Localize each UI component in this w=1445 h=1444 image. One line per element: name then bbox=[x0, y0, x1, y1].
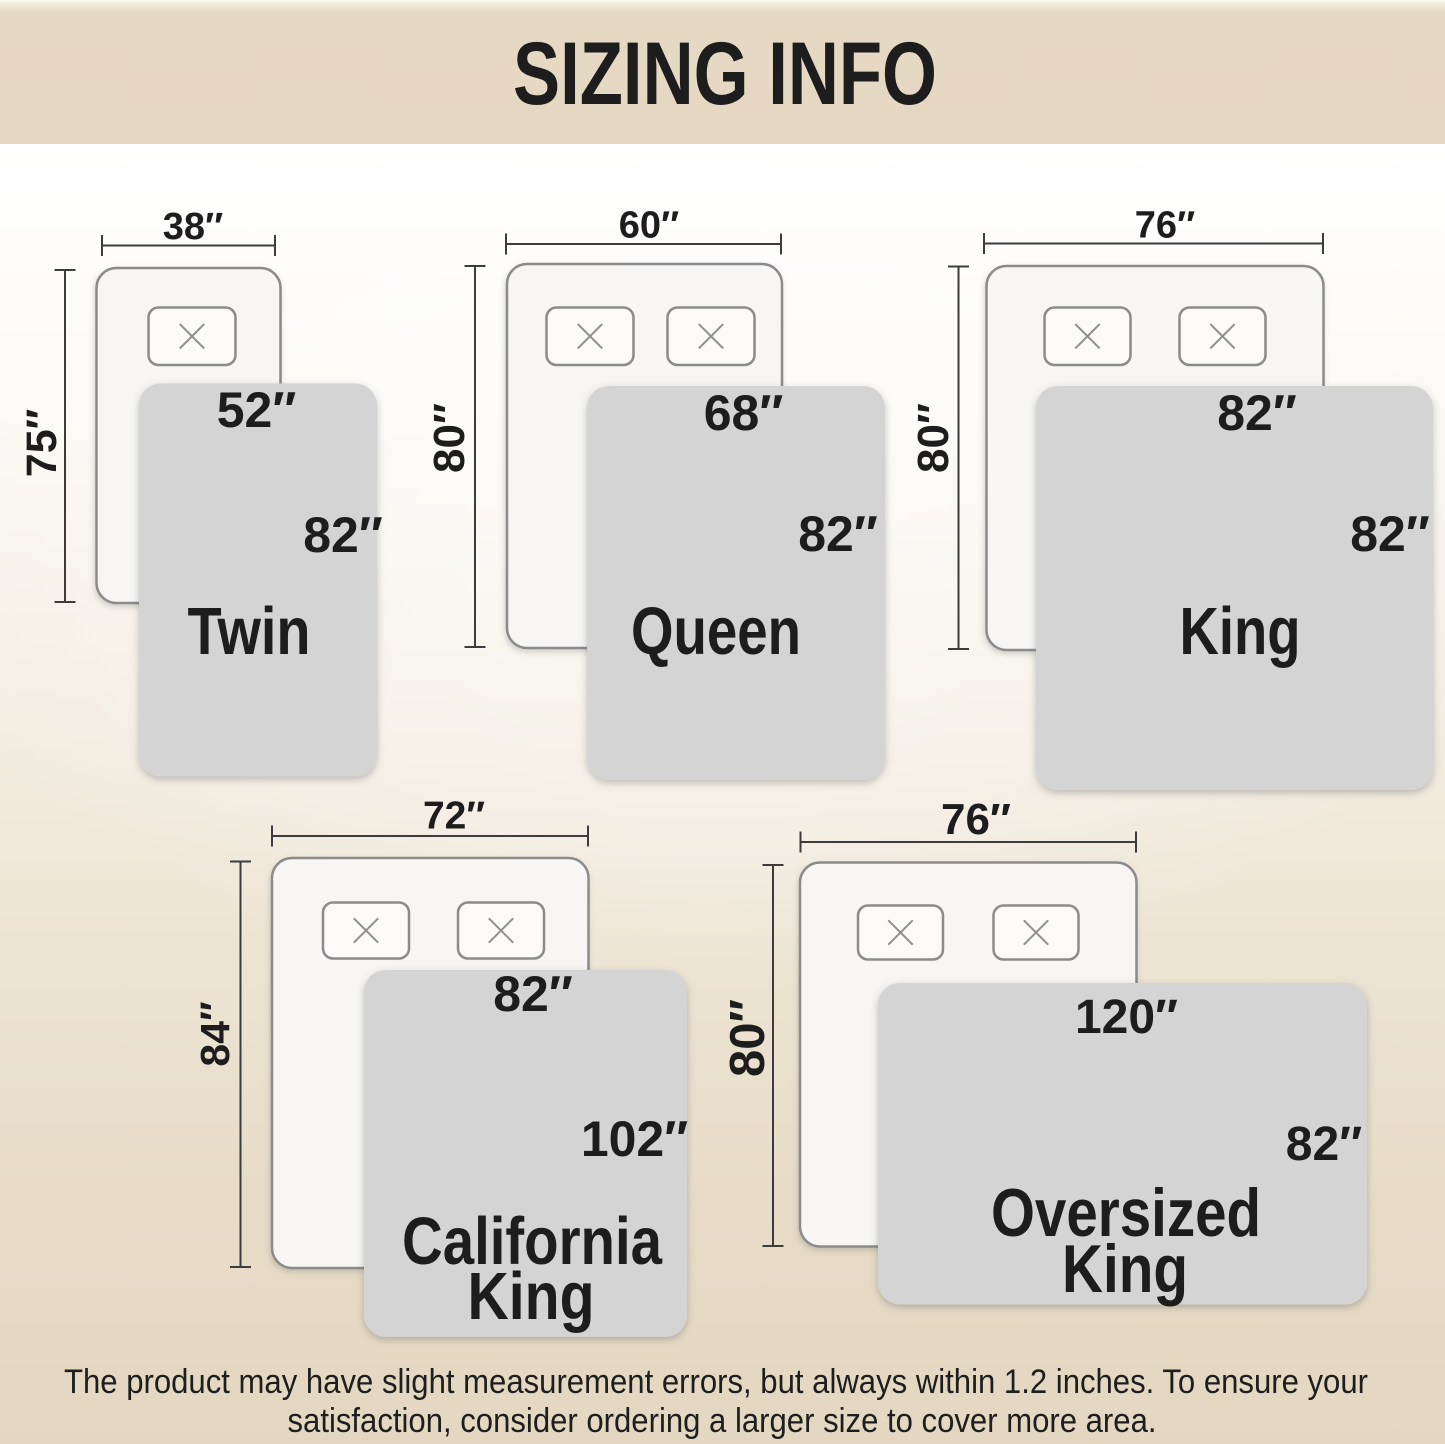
svg-text:80″: 80″ bbox=[909, 403, 958, 473]
svg-text:82″: 82″ bbox=[303, 507, 383, 563]
svg-text:Queen: Queen bbox=[631, 594, 801, 669]
svg-text:Twin: Twin bbox=[188, 594, 311, 669]
svg-text:SIZING INFO: SIZING INFO bbox=[513, 23, 937, 123]
svg-text:38″: 38″ bbox=[163, 206, 223, 248]
svg-text:King: King bbox=[468, 1259, 595, 1334]
svg-text:120″: 120″ bbox=[1075, 991, 1178, 1044]
svg-text:82″: 82″ bbox=[1350, 506, 1430, 562]
svg-text:82″: 82″ bbox=[1217, 385, 1297, 441]
svg-text:68″: 68″ bbox=[704, 385, 784, 441]
svg-text:82″: 82″ bbox=[798, 506, 878, 562]
svg-text:King: King bbox=[1062, 1231, 1188, 1307]
svg-text:satisfaction, consider orderin: satisfaction, consider ordering a larger… bbox=[288, 1402, 1157, 1440]
svg-text:76″: 76″ bbox=[1135, 205, 1195, 247]
svg-text:80″: 80″ bbox=[721, 999, 775, 1077]
svg-text:84″: 84″ bbox=[192, 1001, 238, 1066]
svg-text:76″: 76″ bbox=[941, 795, 1011, 844]
svg-text:75″: 75″ bbox=[18, 409, 66, 477]
svg-text:60″: 60″ bbox=[619, 205, 679, 247]
svg-text:52″: 52″ bbox=[217, 382, 297, 438]
svg-text:82″: 82″ bbox=[493, 966, 573, 1022]
svg-text:King: King bbox=[1180, 594, 1301, 669]
svg-text:80″: 80″ bbox=[425, 403, 474, 473]
svg-text:82″: 82″ bbox=[1286, 1118, 1362, 1171]
svg-text:102″: 102″ bbox=[581, 1111, 688, 1167]
svg-text:72″: 72″ bbox=[423, 795, 485, 838]
svg-text:The product may have slight me: The product may have slight measurement … bbox=[64, 1363, 1368, 1401]
